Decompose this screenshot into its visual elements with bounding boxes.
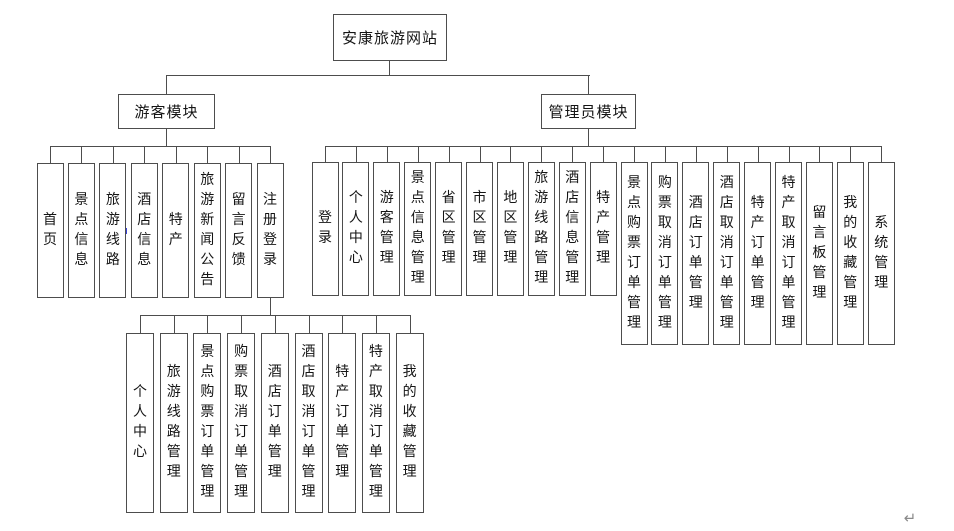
tree-node-label: 登录	[318, 209, 332, 249]
connector-leaf-stub	[241, 315, 242, 334]
tree-node: 特产取消订单管理	[362, 333, 390, 513]
tree-node-root: 安康旅游网站	[333, 14, 447, 61]
tree-node-label: 市区管理	[473, 189, 487, 269]
tree-node: 游客管理	[373, 162, 400, 296]
return-mark-icon: ↵	[898, 508, 922, 528]
tree-node-label: 旅游线路管理	[167, 363, 181, 483]
tree-node: 景点购票订单管理	[621, 162, 648, 345]
tree-node-label: 特产取消订单管理	[369, 343, 383, 503]
tree-node: 旅游线路管理	[160, 333, 188, 513]
tree-node-label: 个人中心	[349, 189, 363, 269]
connector-leaf-stub	[634, 146, 635, 163]
tree-node-label: 酒店订单管理	[689, 194, 703, 314]
tree-node: 我的收藏管理	[396, 333, 424, 513]
tree-node: 景点信息	[68, 163, 95, 298]
tree-node-label: 酒店信息管理	[565, 169, 579, 289]
tree-node-label: 酒店取消订单管理	[720, 174, 734, 334]
tree-node-label: 酒店信息	[137, 191, 151, 271]
connector-leaf-stub	[356, 146, 357, 163]
connector-visitor-drop	[166, 75, 167, 94]
tree-node-label: 特产订单管理	[335, 363, 349, 483]
tree-node-label: 旅游线路	[106, 191, 120, 271]
tree-node-label: 景点信息	[74, 191, 88, 271]
tree-node: 省区管理	[435, 162, 462, 296]
tree-node-label: 旅游线路管理	[534, 169, 548, 289]
tree-node: 特产订单管理	[744, 162, 771, 345]
tree-node: 景点购票订单管理	[193, 333, 221, 513]
tree-node: 留言反馈	[225, 163, 252, 298]
tree-node-label: 特产	[169, 211, 183, 251]
tree-node-label: 系统管理	[874, 214, 888, 294]
connector-root-stub	[389, 61, 390, 75]
connector-leaf-stub	[850, 146, 851, 163]
connector-leaf-stub	[176, 146, 177, 164]
tree-node: 特产订单管理	[328, 333, 356, 513]
tree-node: 酒店订单管理	[682, 162, 709, 345]
connector-leaf-stub	[325, 146, 326, 163]
connector-leaf-stub	[113, 146, 114, 164]
admin-module-label: 管理员模块	[548, 101, 628, 122]
tree-node: 旅游线路管理	[528, 162, 555, 296]
tree-node: 个人中心	[126, 333, 154, 513]
connector-leaf-stub	[144, 146, 145, 164]
connector-admin-drop	[588, 75, 589, 94]
tree-node-label: 特产取消订单管理	[782, 174, 796, 334]
tree-node: 景点信息管理	[404, 162, 431, 296]
tree-node-label: 景点购票订单管理	[627, 174, 641, 334]
tree-node-label: 留言板管理	[812, 204, 826, 304]
connector-leaf-stub	[207, 146, 208, 164]
tree-node-label: 省区管理	[442, 189, 456, 269]
tree-node: 购票取消订单管理	[227, 333, 255, 513]
tree-node-visitor-module: 游客模块	[118, 94, 215, 129]
connector-leaf-stub	[140, 315, 141, 334]
connector-leaf-stub	[376, 315, 377, 334]
tree-node: 特产管理	[590, 162, 617, 296]
tree-node: 特产取消订单管理	[775, 162, 802, 345]
tree-node: 市区管理	[466, 162, 493, 296]
tree-node: 旅游新闻公告	[194, 163, 221, 298]
connector-leaf-stub	[789, 146, 790, 163]
connector-leaf-stub	[81, 146, 82, 164]
connector-leaf-stub	[387, 146, 388, 163]
tree-node-label: 游客管理	[380, 189, 394, 269]
tree-node-label: 酒店取消订单管理	[302, 343, 316, 503]
tree-node-label: 注册登录	[263, 191, 277, 271]
connector-leaf-stub	[342, 315, 343, 334]
tree-node: 酒店信息管理	[559, 162, 586, 296]
connector-visitor-rail	[50, 146, 270, 147]
tree-node-admin-module: 管理员模块	[541, 94, 636, 129]
connector-register-stub	[270, 298, 271, 315]
connector-leaf-stub	[270, 146, 271, 164]
tree-node: 酒店取消订单管理	[295, 333, 323, 513]
tree-node: 购票取消订单管理	[651, 162, 678, 345]
org-chart: 安康旅游网站 游客模块 管理员模块 ↵ 首页景点信息旅游线路酒店信息特产旅游新闻…	[0, 0, 954, 531]
tree-node-label: 首页	[43, 211, 57, 251]
tree-node-root-label: 安康旅游网站	[342, 27, 438, 48]
tree-node-label: 景点信息管理	[411, 169, 425, 289]
connector-leaf-stub	[275, 315, 276, 334]
connector-leaf-stub	[449, 146, 450, 163]
connector-leaf-stub	[881, 146, 882, 163]
tree-node: 我的收藏管理	[837, 162, 864, 345]
tree-node-label: 购票取消订单管理	[234, 343, 248, 503]
visitor-module-label: 游客模块	[134, 101, 198, 122]
connector-leaf-stub	[819, 146, 820, 163]
connector-leaf-stub	[603, 146, 604, 163]
tree-node-label: 留言反馈	[232, 191, 246, 271]
connector-leaf-stub	[309, 315, 310, 334]
tree-node: 首页	[37, 163, 64, 298]
tree-node: 登录	[312, 162, 339, 296]
connector-leaf-stub	[510, 146, 511, 163]
connector-visitor-stub	[166, 129, 167, 146]
connector-leaf-stub	[50, 146, 51, 164]
tree-node: 留言板管理	[806, 162, 833, 345]
tree-node: 系统管理	[868, 162, 895, 345]
tree-node-label: 特产管理	[596, 189, 610, 269]
tree-node: 旅游线路	[99, 163, 126, 298]
connector-leaf-stub	[727, 146, 728, 163]
tree-node-label: 酒店订单管理	[268, 363, 282, 483]
connector-leaf-stub	[665, 146, 666, 163]
tree-node: 个人中心	[342, 162, 369, 296]
tree-node-label: 我的收藏管理	[403, 363, 417, 483]
tree-node: 注册登录	[257, 163, 284, 298]
tree-node-label: 景点购票订单管理	[200, 343, 214, 503]
tree-node-label: 特产订单管理	[751, 194, 765, 314]
connector-admin-stub	[588, 129, 589, 146]
connector-leaf-stub	[541, 146, 542, 163]
tree-node-label: 个人中心	[133, 383, 147, 463]
tree-node-label: 购票取消订单管理	[658, 174, 672, 334]
connector-leaf-stub	[410, 315, 411, 334]
tree-node: 地区管理	[497, 162, 524, 296]
connector-leaf-stub	[572, 146, 573, 163]
connector-leaf-stub	[758, 146, 759, 163]
tree-node-label: 我的收藏管理	[843, 194, 857, 314]
connector-leaf-stub	[480, 146, 481, 163]
connector-leaf-stub	[418, 146, 419, 163]
tree-node-label: 旅游新闻公告	[200, 171, 214, 291]
tree-node: 酒店订单管理	[261, 333, 289, 513]
connector-leaf-stub	[174, 315, 175, 334]
connector-leaf-stub	[239, 146, 240, 164]
tree-node-label: 地区管理	[503, 189, 517, 269]
connector-leaf-stub	[207, 315, 208, 334]
connector-level1-rail	[166, 75, 590, 76]
tree-node: 酒店信息	[131, 163, 158, 298]
connector-leaf-stub	[696, 146, 697, 163]
tree-node: 特产	[162, 163, 189, 298]
tree-node: 酒店取消订单管理	[713, 162, 740, 345]
